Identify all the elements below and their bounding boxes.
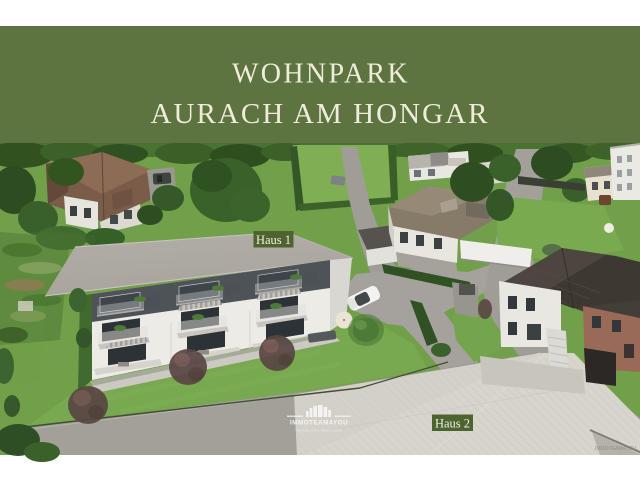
svg-text:Haus 2: Haus 2 (435, 416, 470, 430)
svg-text:IMMOTEAM4YOU: IMMOTEAM4YOU (595, 446, 637, 452)
svg-text:AURACH AM HONGAR: AURACH AM HONGAR (151, 98, 490, 130)
svg-text:IMMOBILIEN & MEHR GMBH: IMMOBILIEN & MEHR GMBH (296, 428, 343, 432)
svg-text:Haus 1: Haus 1 (256, 233, 291, 247)
svg-text:IMMOTEAM4YOU: IMMOTEAM4YOU (290, 419, 348, 426)
svg-text:WOHNPARK: WOHNPARK (232, 59, 410, 90)
